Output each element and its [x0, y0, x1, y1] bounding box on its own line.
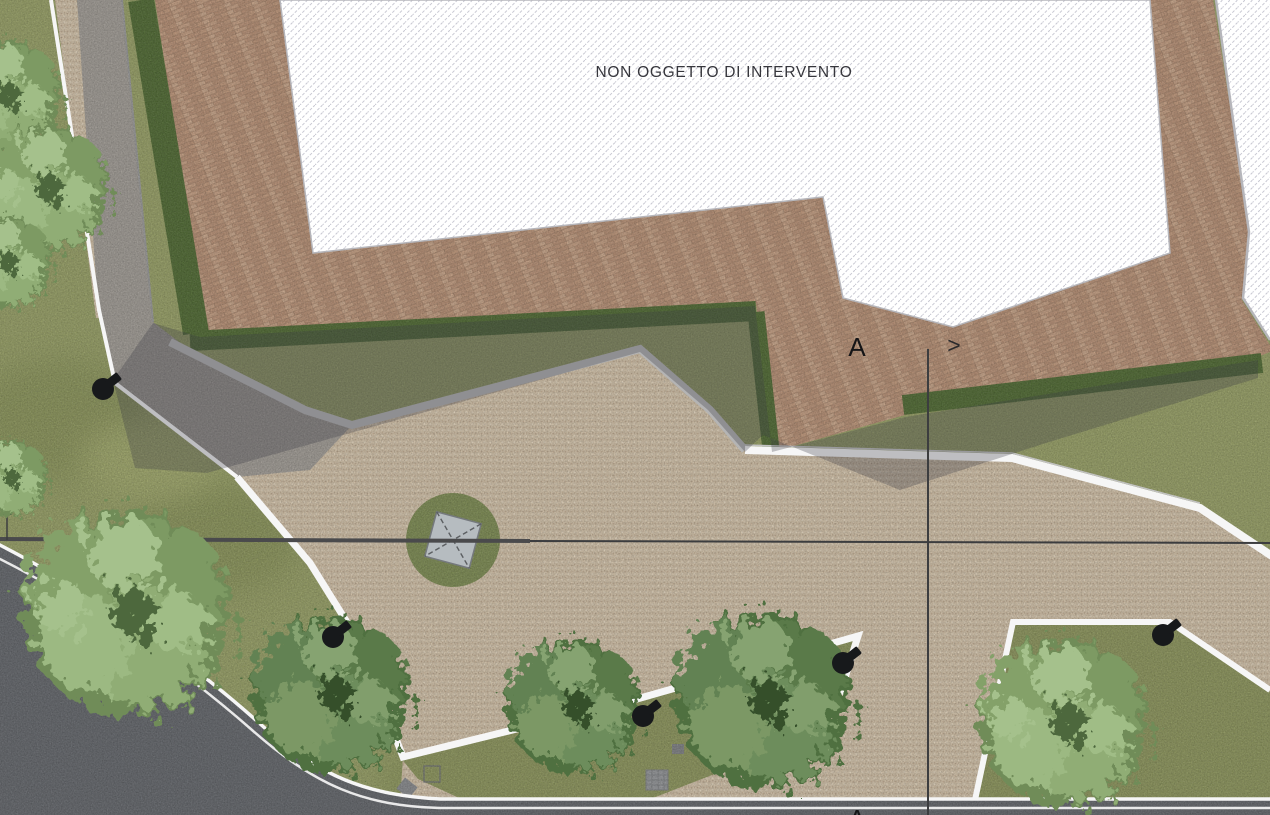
site-plan-viewport: NON OGGETTO DI INTERVENTO: [0, 0, 1270, 815]
section-label-a-top: A: [848, 332, 866, 362]
non-intervention-label: NON OGGETTO DI INTERVENTO: [596, 64, 853, 81]
tree-icon: [24, 508, 231, 715]
section-arrow-icon: >: [947, 332, 960, 358]
section-label-a-bottom: A: [848, 804, 866, 815]
tree-icon: [980, 638, 1149, 807]
tree-icon: [507, 639, 641, 773]
site-plan-drawing: NON OGGETTO DI INTERVENTO: [0, 0, 1270, 815]
tree-icon: [676, 612, 853, 789]
